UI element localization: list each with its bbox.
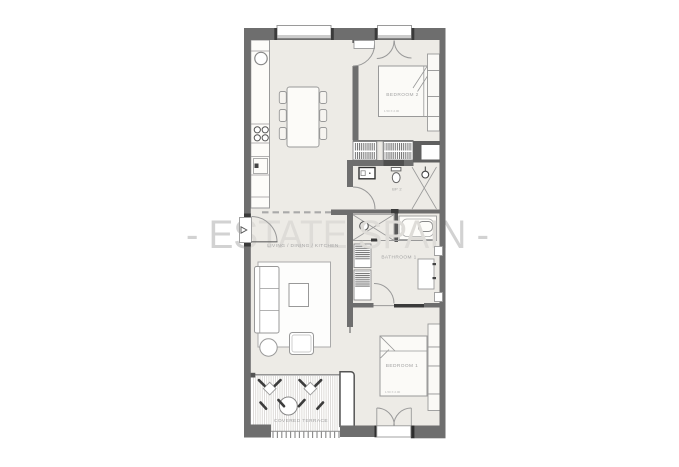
svg-text:BEDROOM 2: BEDROOM 2 bbox=[386, 92, 418, 98]
svg-text:BEDROOM 1: BEDROOM 1 bbox=[386, 363, 418, 369]
svg-text:BATHROOM 1: BATHROOM 1 bbox=[381, 255, 416, 261]
svg-text:COVERED TERRACE: COVERED TERRACE bbox=[274, 418, 328, 424]
svg-text:1.50 X 2.00: 1.50 X 2.00 bbox=[384, 109, 400, 113]
svg-text:BP 2: BP 2 bbox=[392, 187, 402, 192]
svg-text:LIVING / DINING / KITCHEN: LIVING / DINING / KITCHEN bbox=[267, 243, 339, 249]
svg-text:1.50 X 2.00: 1.50 X 2.00 bbox=[385, 390, 401, 394]
